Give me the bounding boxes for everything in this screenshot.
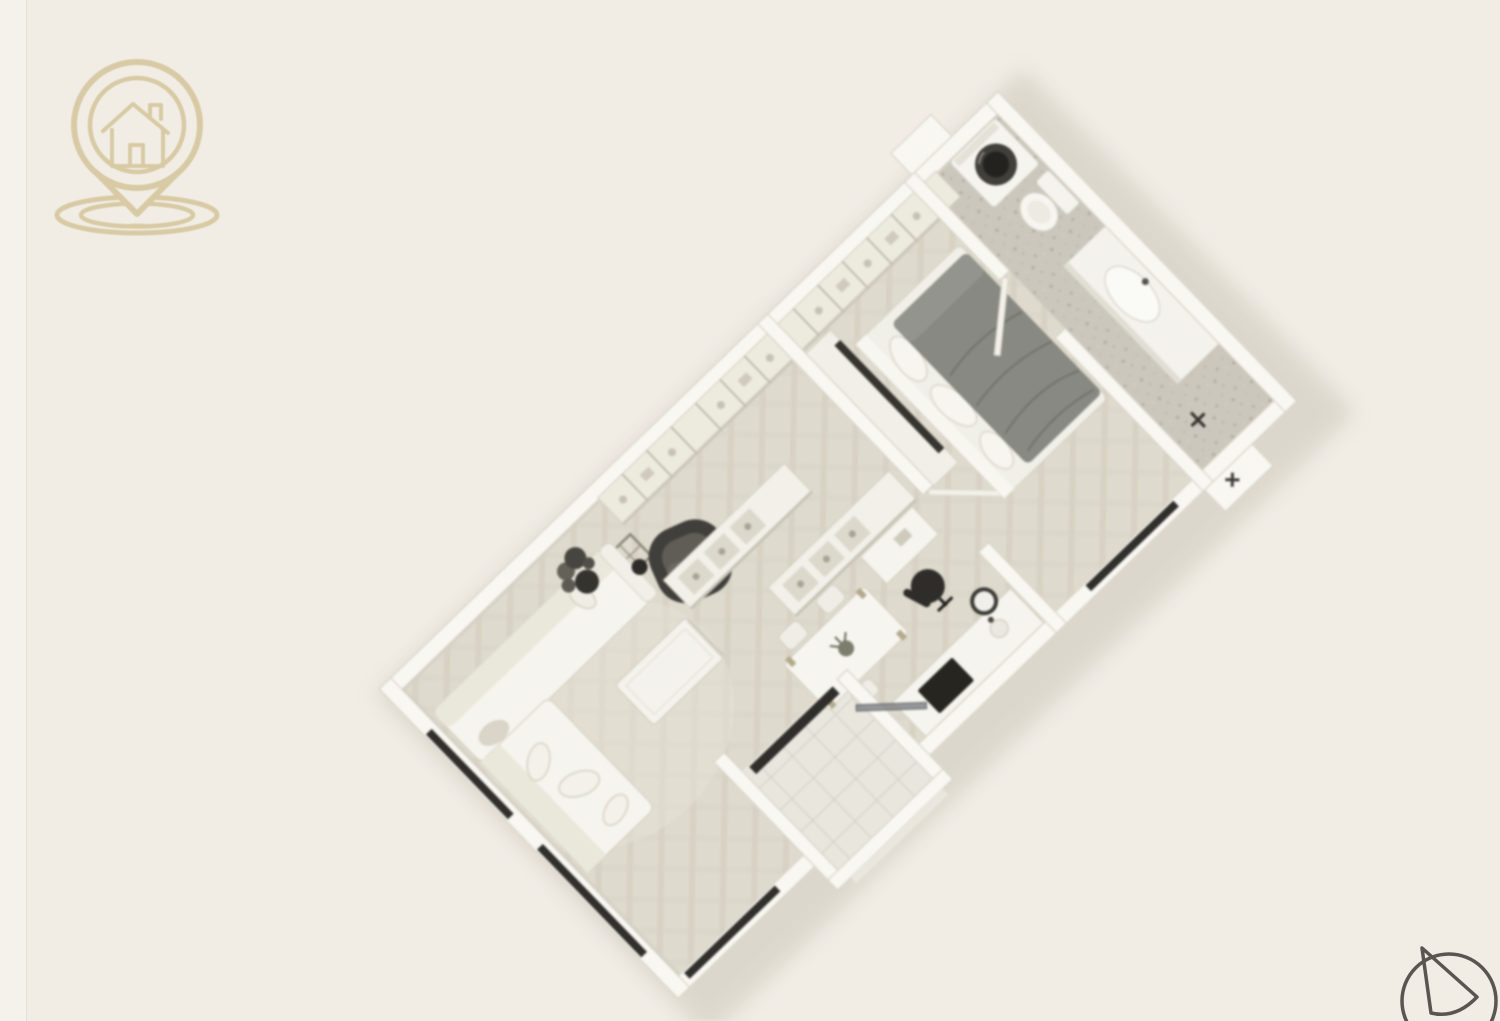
compass-button[interactable]	[1380, 925, 1500, 1021]
floorplan-canvas[interactable]	[0, 0, 1500, 1021]
compass-circle	[1402, 954, 1496, 1021]
north-arrow-icon	[1402, 948, 1496, 1021]
page: { "page": { "title": "3D isometric apart…	[0, 0, 1500, 1021]
building	[354, 46, 1355, 1021]
bedroom-door	[929, 489, 1003, 496]
